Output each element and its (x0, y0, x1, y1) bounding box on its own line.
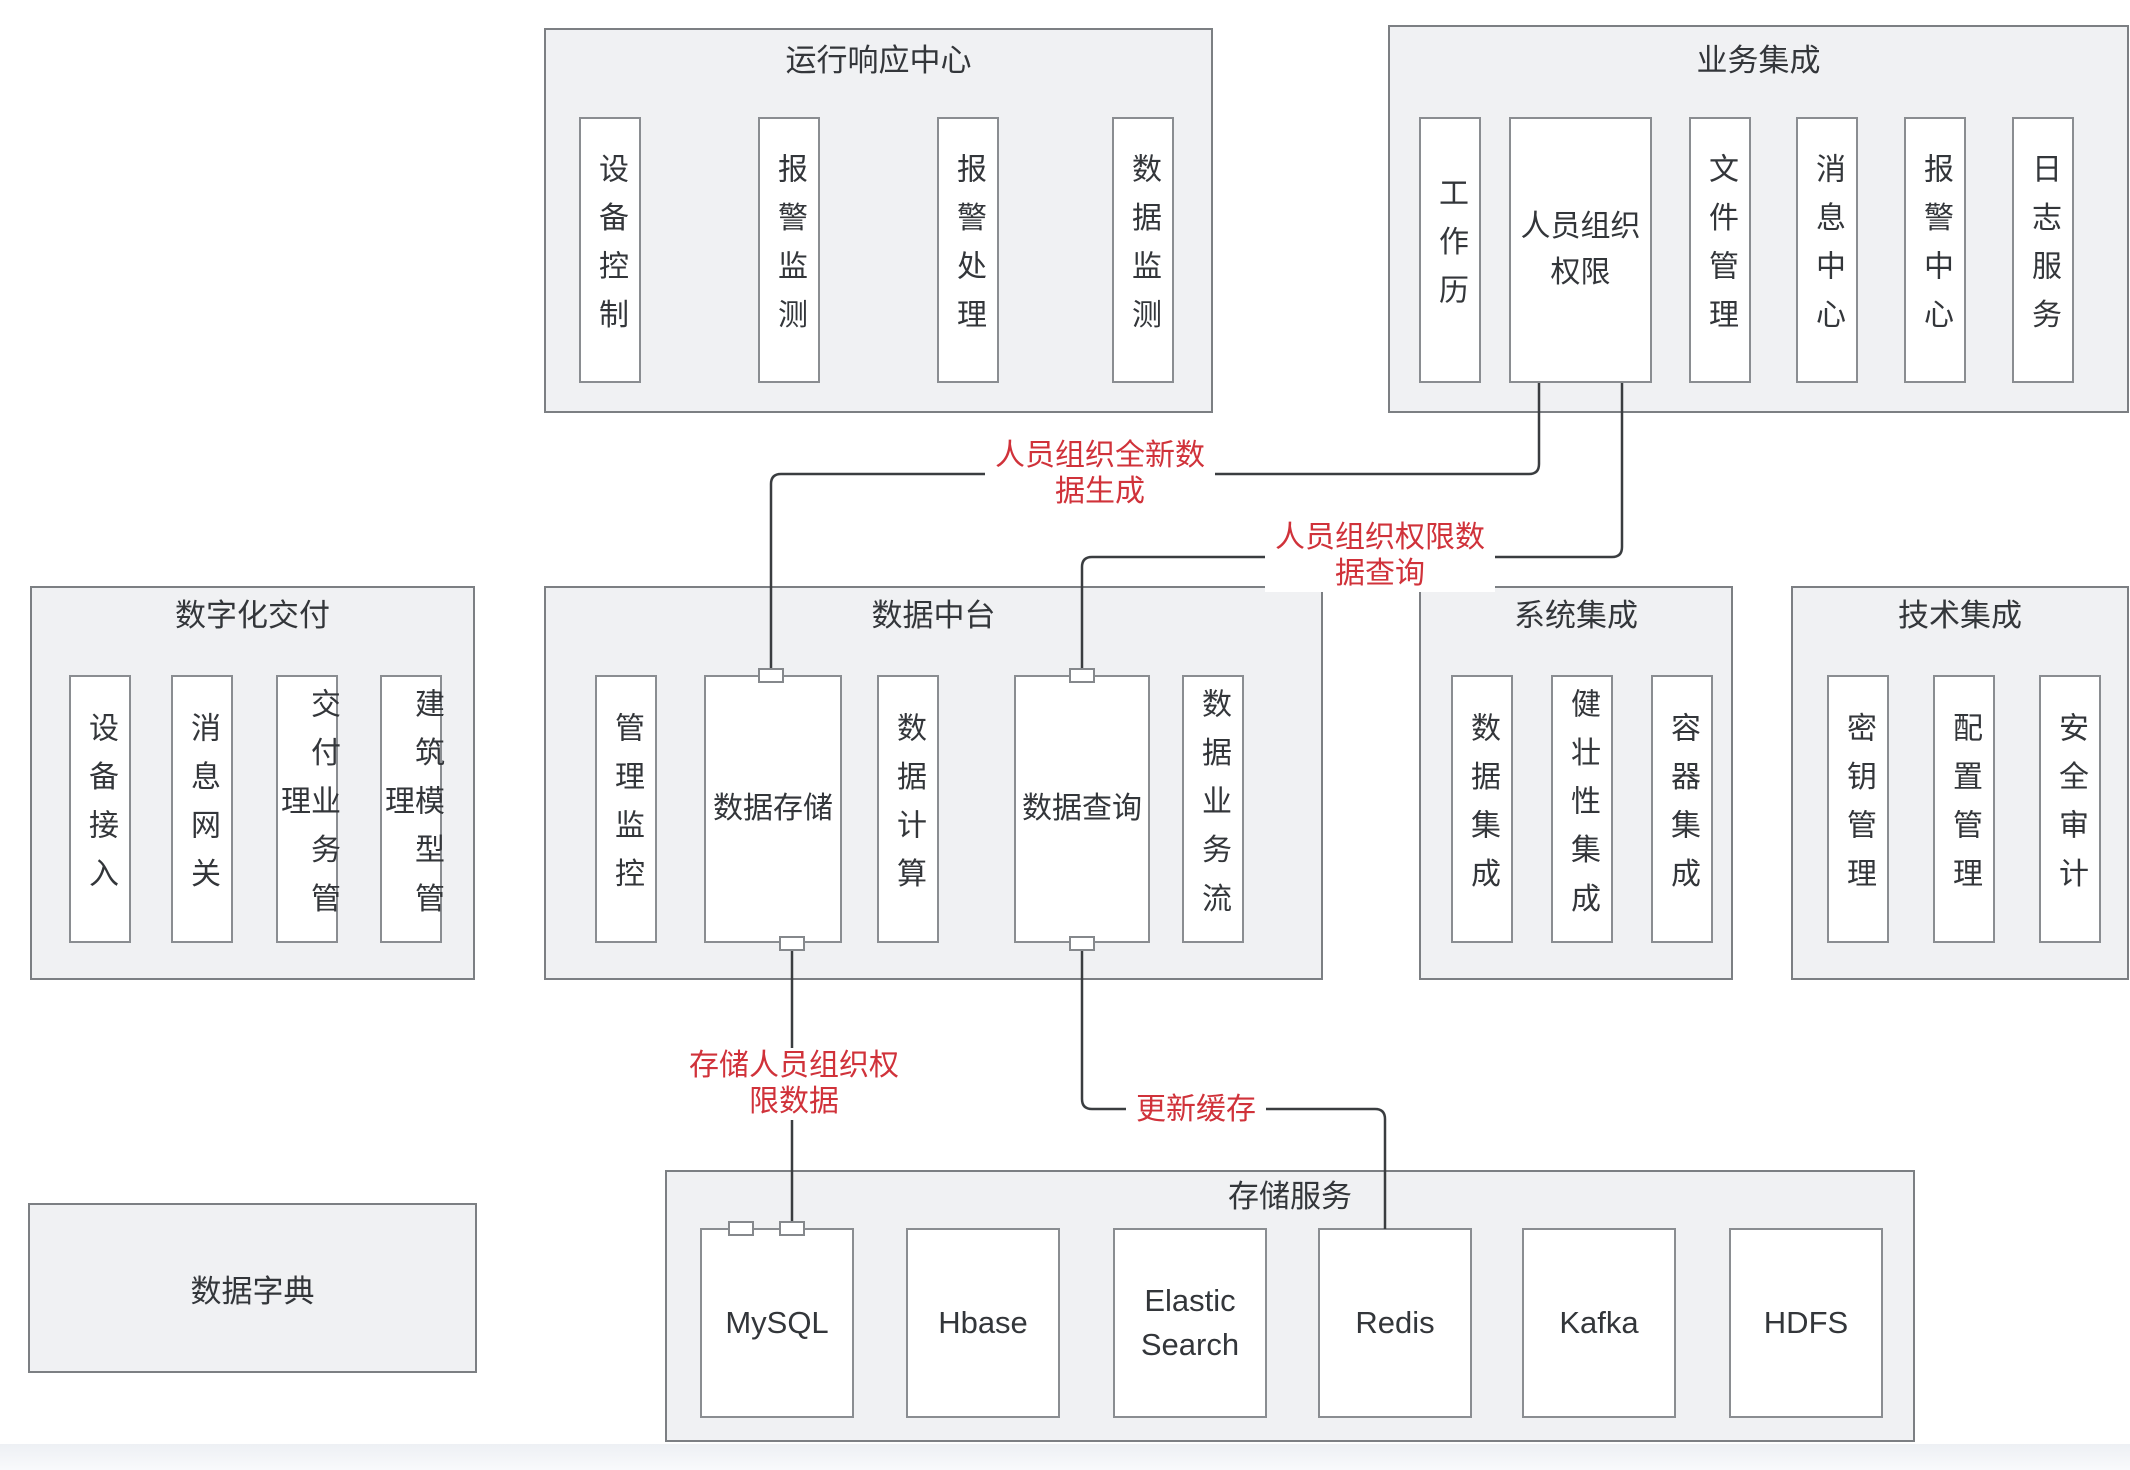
node-building-model-management: 建筑模型管理 (380, 675, 442, 943)
node-key-management: 密钥管理 (1827, 675, 1889, 943)
group-technology-integration: 技术集成 密钥管理 配置管理 安全审计 (1791, 586, 2129, 980)
node-alarm-monitoring: 报警监测 (758, 117, 820, 383)
node-redis: Redis (1318, 1228, 1472, 1418)
node-data-integration: 数据集成 (1451, 675, 1513, 943)
group-operation-response-center: 运行响应中心 设备控制 报警监测 报警处理 数据监测 (544, 28, 1213, 413)
group-title: 存储服务 (667, 1180, 1913, 1214)
node-personnel-org-permission: 人员组织权限 (1509, 117, 1652, 383)
group-title: 数字化交付 (32, 599, 473, 633)
edge-label-query-personnel-org-permission-data: 人员组织权限数 据查询 (1265, 520, 1495, 592)
node-equipment-control: 设备控制 (579, 117, 641, 383)
node-log-service: 日志服务 (2012, 117, 2074, 383)
group-title: 系统集成 (1421, 599, 1731, 633)
architecture-diagram: 运行响应中心 设备控制 报警监测 报警处理 数据监测 业务集成 工作历 人员组织… (0, 0, 2130, 1470)
edge-label-store-personnel-org-permission-data: 存储人员组织权 限数据 (679, 1048, 909, 1120)
node-robustness-integration: 健壮性集成 (1551, 675, 1613, 943)
node-mysql: MySQL (700, 1228, 854, 1418)
node-file-management: 文件管理 (1689, 117, 1751, 383)
edge-label-generate-personnel-org-data: 人员组织全新数 据生成 (985, 438, 1215, 510)
node-alarm-center: 报警中心 (1904, 117, 1966, 383)
group-title: 技术集成 (1793, 599, 2127, 633)
node-data-storage: 数据存储 (704, 675, 842, 943)
port-data-query-top (1069, 668, 1095, 683)
node-data-monitoring: 数据监测 (1112, 117, 1174, 383)
node-data-query: 数据查询 (1014, 675, 1150, 943)
port-data-query-bottom (1069, 936, 1095, 951)
node-hdfs: HDFS (1729, 1228, 1883, 1418)
group-title: 数据中台 (546, 599, 1321, 633)
node-management-monitoring: 管理监控 (595, 675, 657, 943)
node-elastic-search: Elastic Search (1113, 1228, 1267, 1418)
node-security-audit: 安全审计 (2039, 675, 2101, 943)
bottom-gradient-band (0, 1444, 2130, 1470)
group-title: 数据字典 (191, 1266, 315, 1311)
group-business-integration: 业务集成 工作历 人员组织权限 文件管理 消息中心 报警中心 日志服务 (1388, 25, 2129, 413)
group-data-dictionary: 数据字典 (28, 1203, 477, 1373)
port-mysql-top-right (779, 1221, 805, 1236)
port-mysql-top-left (728, 1221, 754, 1236)
group-system-integration: 系统集成 数据集成 健壮性集成 容器集成 (1419, 586, 1733, 980)
port-data-storage-bottom (779, 936, 805, 951)
group-title: 业务集成 (1390, 44, 2127, 78)
group-title: 运行响应中心 (546, 44, 1211, 78)
port-data-storage-top (758, 668, 784, 683)
node-container-integration: 容器集成 (1651, 675, 1713, 943)
node-message-gateway: 消息网关 (171, 675, 233, 943)
node-data-computing: 数据计算 (877, 675, 939, 943)
node-kafka: Kafka (1522, 1228, 1676, 1418)
node-data-business-flow: 数据业务流 (1182, 675, 1244, 943)
edge-label-update-cache: 更新缓存 (1126, 1092, 1266, 1128)
node-device-access: 设备接入 (69, 675, 131, 943)
node-delivery-business-management: 交付业务管理 (276, 675, 338, 943)
node-work-calendar: 工作历 (1419, 117, 1481, 383)
group-storage-services: 存储服务 MySQL Hbase Elastic Search Redis Ka… (665, 1170, 1915, 1442)
node-hbase: Hbase (906, 1228, 1060, 1418)
node-config-management: 配置管理 (1933, 675, 1995, 943)
group-data-middle-platform: 数据中台 管理监控 数据存储 数据计算 数据查询 数据业务流 (544, 586, 1323, 980)
node-message-center: 消息中心 (1796, 117, 1858, 383)
node-alarm-handling: 报警处理 (937, 117, 999, 383)
group-digital-delivery: 数字化交付 设备接入 消息网关 交付业务管理 建筑模型管理 (30, 586, 475, 980)
